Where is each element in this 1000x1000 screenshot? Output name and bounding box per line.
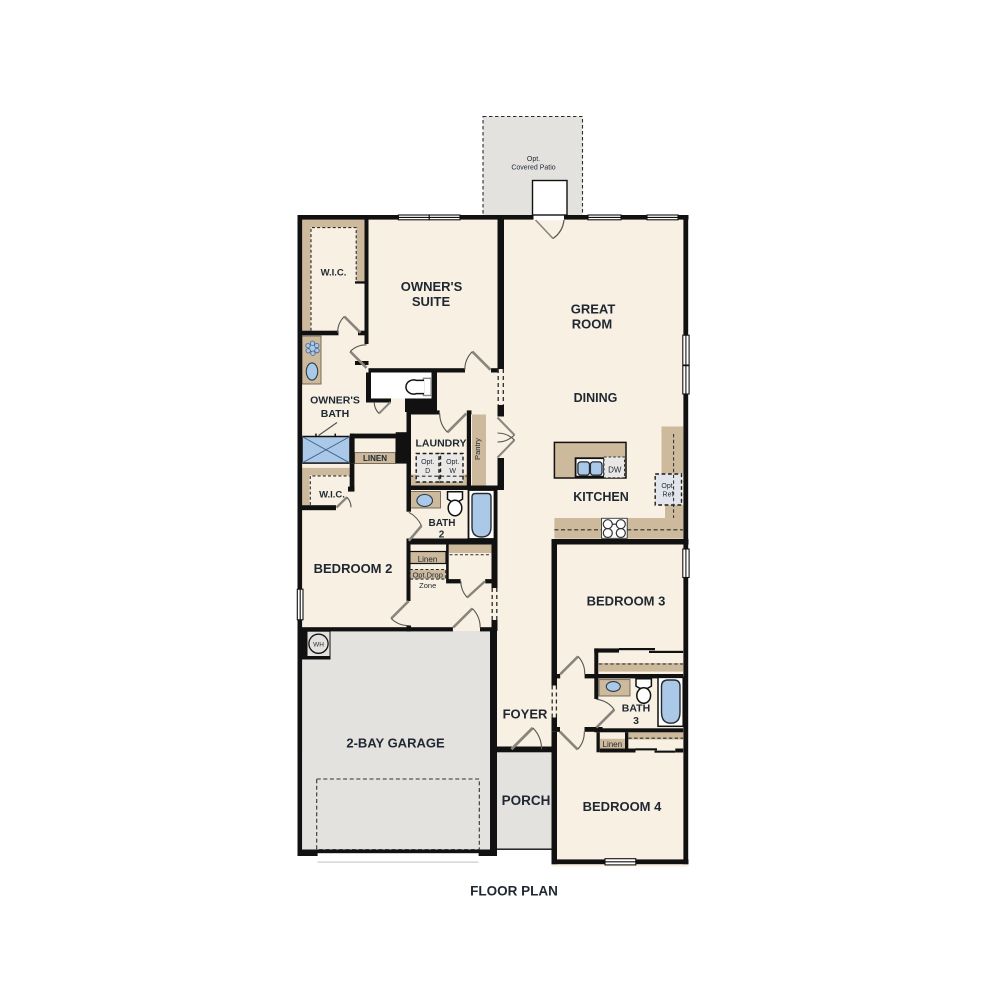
svg-text:LAUNDRY: LAUNDRY (416, 438, 467, 450)
svg-text:Opt.Drop: Opt.Drop (412, 571, 442, 580)
svg-text:BEDROOM 3: BEDROOM 3 (587, 594, 666, 609)
svg-text:BATH: BATH (622, 703, 650, 715)
svg-text:KITCHEN: KITCHEN (573, 490, 629, 504)
svg-text:Opt.: Opt. (527, 156, 540, 163)
svg-text:Ref: Ref (663, 492, 674, 499)
svg-text:WH: WH (313, 641, 324, 648)
svg-text:Opt.: Opt. (421, 459, 434, 466)
svg-text:Linen: Linen (418, 555, 438, 564)
svg-text:DINING: DINING (574, 391, 618, 405)
svg-text:W.I.C.: W.I.C. (321, 268, 347, 279)
svg-text:BATH: BATH (428, 518, 455, 529)
svg-text:Covered Patio: Covered Patio (511, 165, 555, 172)
svg-text:OWNER'S: OWNER'S (401, 279, 463, 294)
svg-text:Opt.: Opt. (661, 483, 674, 490)
svg-text:W.I.C.: W.I.C. (319, 490, 345, 501)
svg-text:BEDROOM 4: BEDROOM 4 (583, 799, 663, 814)
svg-text:2-BAY GARAGE: 2-BAY GARAGE (346, 736, 445, 751)
svg-text:BATH: BATH (321, 408, 349, 420)
svg-text:W: W (449, 468, 456, 475)
svg-text:Zone: Zone (419, 581, 436, 590)
svg-text:ROOM: ROOM (572, 317, 612, 332)
svg-text:GREAT: GREAT (571, 302, 616, 317)
svg-text:D: D (425, 468, 430, 475)
svg-text:2: 2 (439, 530, 445, 541)
svg-text:BEDROOM 2: BEDROOM 2 (314, 561, 393, 576)
svg-text:DW: DW (608, 466, 622, 475)
svg-text:Opt.: Opt. (446, 459, 459, 466)
svg-text:FLOOR PLAN: FLOOR PLAN (470, 884, 558, 899)
svg-text:OWNER'S: OWNER'S (310, 395, 360, 407)
svg-text:FOYER: FOYER (503, 707, 548, 722)
svg-text:LINEN: LINEN (363, 454, 387, 463)
svg-text:Pantry: Pantry (473, 438, 482, 460)
svg-text:Linen: Linen (603, 740, 623, 749)
svg-text:3: 3 (633, 715, 639, 727)
svg-text:PORCH: PORCH (502, 793, 551, 808)
svg-text:SUITE: SUITE (412, 294, 451, 309)
